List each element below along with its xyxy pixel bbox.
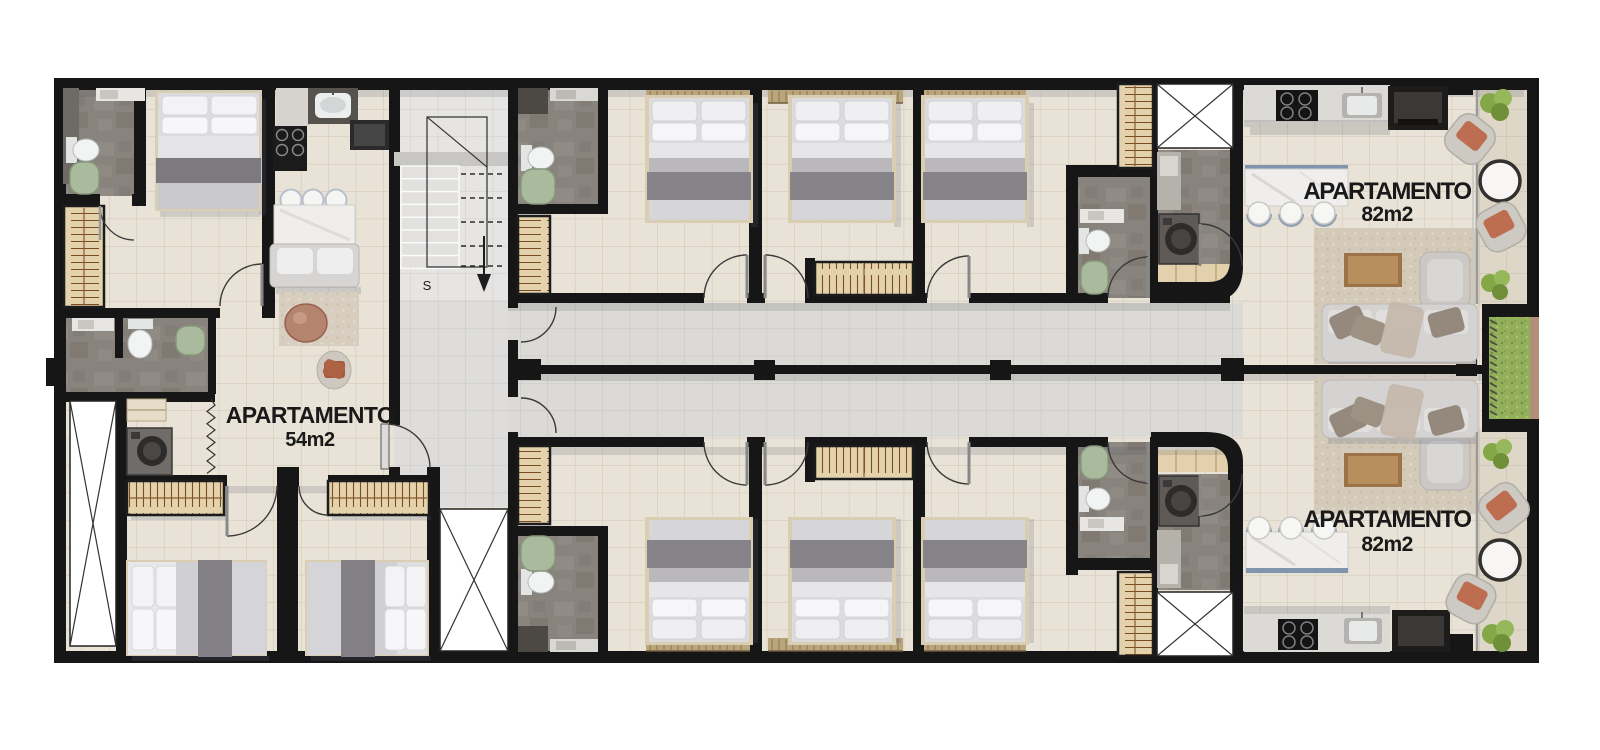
svg-text:82m2: 82m2: [1361, 203, 1412, 226]
svg-text:APARTAMENTO: APARTAMENTO: [226, 402, 394, 428]
svg-text:54m2: 54m2: [285, 429, 335, 451]
svg-text:APARTAMENTO: APARTAMENTO: [1303, 506, 1471, 533]
svg-text:APARTAMENTO: APARTAMENTO: [1303, 178, 1471, 205]
svg-text:S: S: [423, 278, 432, 293]
svg-text:82m2: 82m2: [1361, 533, 1412, 556]
